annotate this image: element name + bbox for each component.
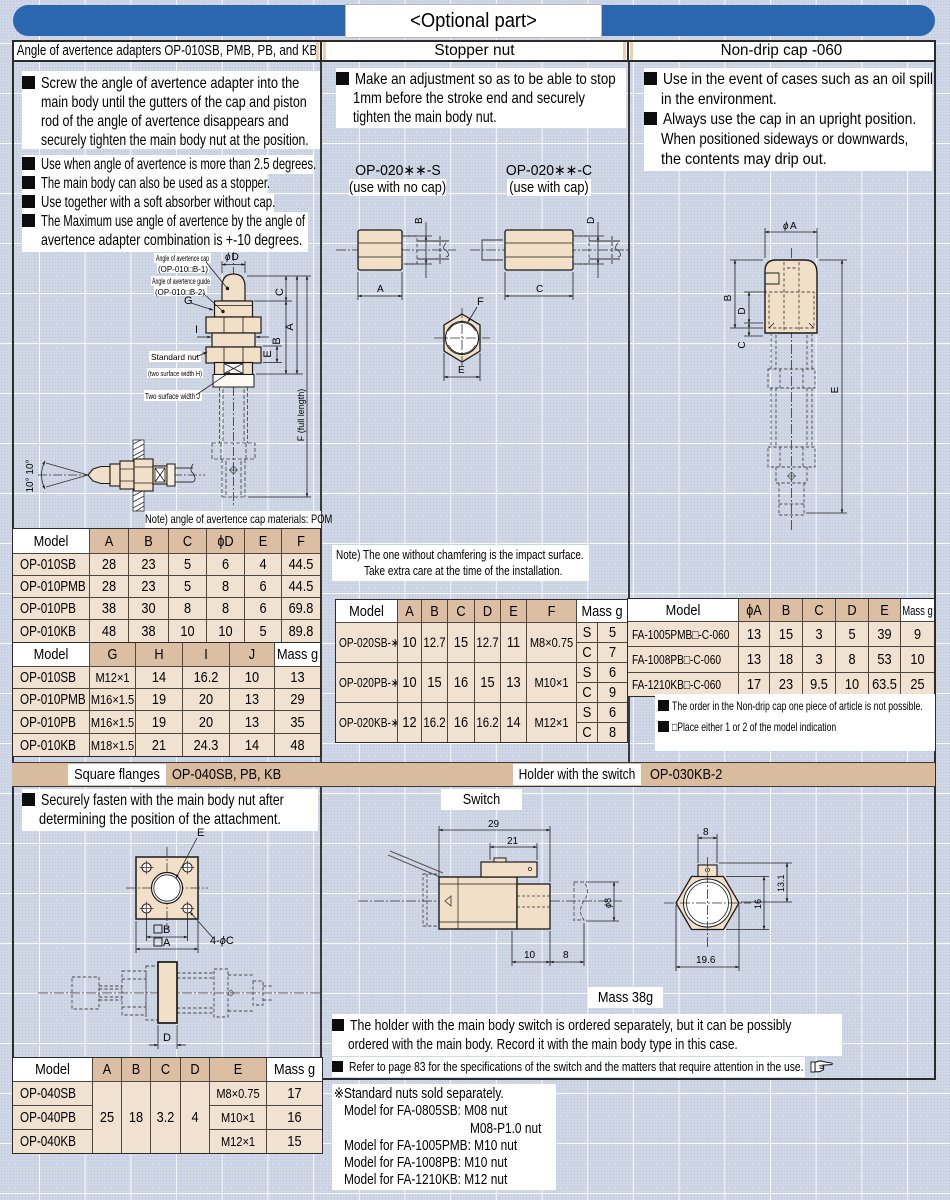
svg-text:Two surface width J: Two surface width J: [145, 392, 200, 401]
svg-text:A: A: [377, 284, 384, 295]
svg-text:D: D: [163, 1032, 171, 1044]
svg-text:D: D: [737, 307, 748, 314]
svg-text:ɸ: ɸ: [783, 221, 789, 232]
svg-text:E: E: [458, 365, 465, 376]
svg-text:E: E: [197, 827, 204, 839]
svg-text:10° 10°: 10° 10°: [25, 459, 36, 492]
svg-text:C: C: [536, 284, 543, 295]
svg-text:D: D: [232, 252, 239, 263]
svg-text:29: 29: [488, 819, 500, 830]
svg-text:B: B: [414, 217, 425, 224]
svg-text:E: E: [830, 386, 841, 393]
svg-text:D: D: [586, 217, 597, 224]
svg-text:E: E: [262, 350, 274, 357]
svg-text:8: 8: [563, 950, 569, 961]
svg-text:ɸ: ɸ: [225, 252, 231, 263]
svg-text:C: C: [274, 288, 286, 296]
svg-text:Standard nut: Standard nut: [151, 352, 200, 362]
svg-text:I: I: [195, 324, 198, 336]
svg-text:A: A: [284, 323, 296, 331]
svg-text:B: B: [723, 294, 734, 301]
svg-text:G: G: [184, 295, 193, 307]
svg-text:10: 10: [524, 950, 536, 961]
svg-text:13.1: 13.1: [776, 874, 786, 892]
svg-text:(OP-010□B-1): (OP-010□B-1): [158, 265, 208, 274]
svg-text:F: F: [477, 296, 484, 308]
svg-text:Angle of avertence guide: Angle of avertence guide: [152, 277, 210, 286]
svg-text:ɸ8: ɸ8: [603, 898, 613, 908]
svg-text:Angle of avertence cap: Angle of avertence cap: [156, 254, 209, 263]
svg-text:(two surface width H): (two surface width H): [148, 369, 202, 378]
svg-text:4-ɸC: 4-ɸC: [210, 935, 234, 947]
svg-text:A: A: [163, 937, 171, 949]
svg-text:B: B: [163, 924, 170, 936]
svg-text:C: C: [737, 341, 748, 348]
svg-text:(OP-010□B-2): (OP-010□B-2): [155, 288, 205, 297]
svg-text:19.6: 19.6: [696, 955, 716, 966]
svg-text:A: A: [790, 221, 797, 232]
svg-text:B: B: [271, 337, 283, 344]
svg-text:8: 8: [703, 827, 709, 838]
svg-text:F (full length): F (full length): [296, 389, 306, 442]
svg-text:21: 21: [507, 836, 519, 847]
svg-text:16: 16: [753, 899, 763, 909]
